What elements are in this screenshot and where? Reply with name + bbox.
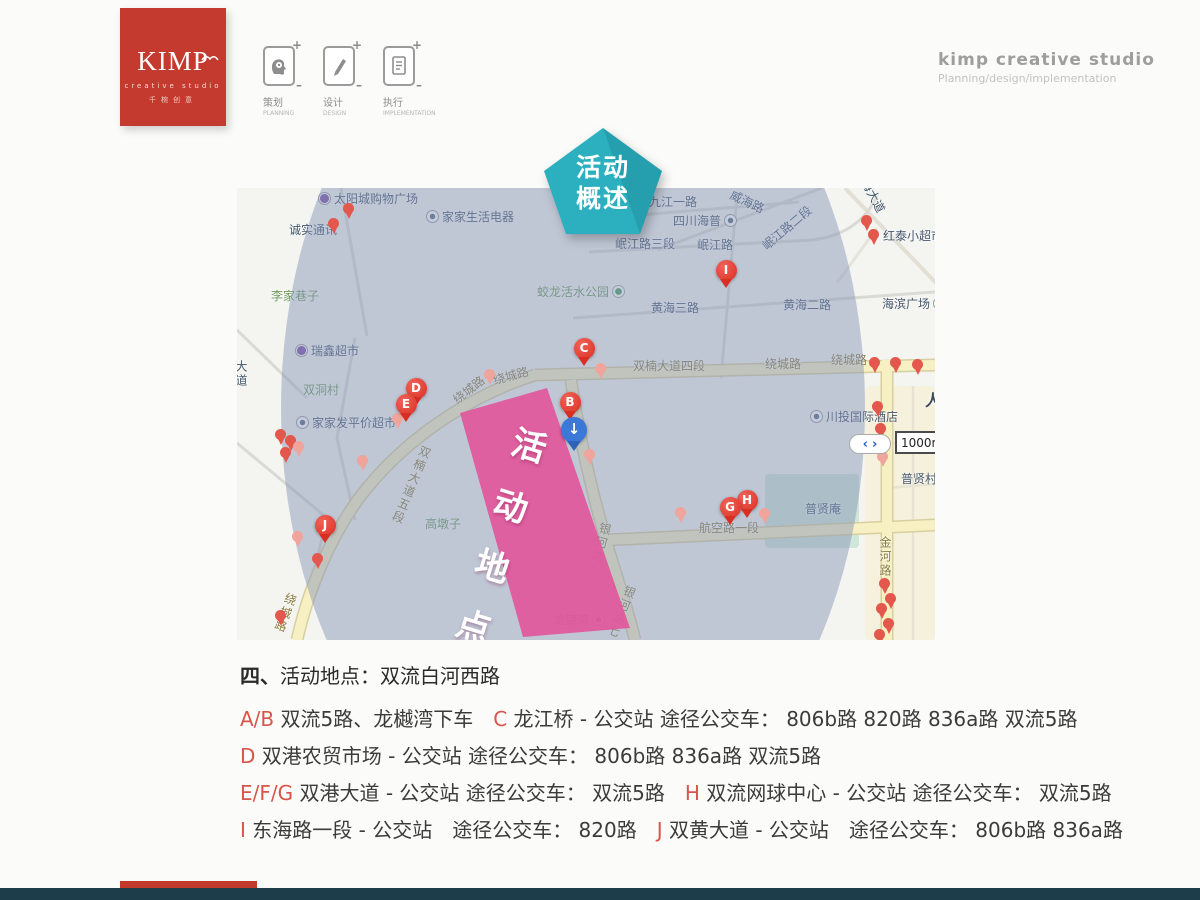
process-label-en: PLANNING [263, 110, 309, 117]
small-pin-icon [890, 357, 901, 368]
studio-title: kimp creative studio [938, 50, 1155, 70]
details-heading: 四、活动地点：双流白河西路 [240, 660, 1190, 689]
process-icons: + – 策划 PLANNING + – 设计 DESIGN + – 执行 IMP… [263, 46, 429, 117]
plus-icon: + [352, 38, 362, 52]
logo-subtitle: creative studio [120, 82, 226, 90]
map-pin-B: B [560, 392, 581, 413]
small-pin-icon [868, 229, 879, 240]
small-pin-icon [328, 218, 339, 229]
stop-letter: A/B [240, 707, 274, 731]
small-pin-icon [875, 423, 886, 434]
planning-head-icon: + – [263, 46, 295, 86]
heading-number: 四、 [240, 664, 280, 688]
section-badge: 活动 概述 [540, 122, 666, 242]
chevron-right-icon: › [872, 438, 877, 451]
route-line: D 双港农贸市场 - 公交站 途径公交车： 806b路 836a路 双流5路 [240, 738, 1190, 775]
minus-icon: – [296, 78, 302, 92]
map-pin-G: G [720, 497, 741, 518]
process-label-zh: 执行 [383, 94, 429, 109]
small-pin-icon [759, 508, 770, 519]
small-pin-icon [876, 603, 887, 614]
process-item-planning: + – 策划 PLANNING [263, 46, 309, 117]
stop-letter: D [240, 744, 255, 768]
process-item-design: + – 设计 DESIGN [323, 46, 369, 117]
logo-tagline: 千椀创意 [120, 95, 226, 105]
route-line: A/B 双流5路、龙樾湾下车 C 龙江桥 - 公交站 途径公交车： 806b路 … [240, 701, 1190, 738]
stop-description: 双港大道 - 公交站 途径公交车： 双流5路 [293, 781, 685, 805]
footer-bar [0, 888, 1200, 900]
route-lines: A/B 双流5路、龙樾湾下车 C 龙江桥 - 公交站 途径公交车： 806b路 … [240, 701, 1190, 849]
small-pin-icon [874, 629, 885, 640]
studio-subtitle: Planning/design/implementation [938, 72, 1155, 85]
plus-icon: + [292, 38, 302, 52]
studio-wordmark: kimp creative studio Planning/design/imp… [938, 50, 1155, 85]
minus-icon: – [356, 78, 362, 92]
small-pin-icon [292, 531, 303, 542]
process-label-en: DESIGN [323, 110, 369, 117]
slide: KIMP creative studio 千椀创意 + – 策划 PLANNIN… [0, 0, 1200, 900]
stop-description: 双黄大道 - 公交站 途径公交车： 806b路 836a路 [663, 818, 1123, 842]
map-zoom-toggle-button[interactable]: ‹ › [849, 434, 891, 454]
small-pin-icon [912, 359, 923, 370]
process-label-zh: 策划 [263, 94, 309, 109]
arrow-down-pin-icon: ↓ [561, 417, 587, 443]
small-pin-icon [872, 401, 883, 412]
stop-description: 东海路一段 - 公交站 途径公交车： 820路 [246, 818, 657, 842]
event-location-map: 太阳城购物广场家家生活电器诚实通讯威海路九江一路四川海普岷江路三段岷江路岷江路二… [237, 188, 935, 640]
heading-text: 活动地点：双流白河西路 [280, 664, 500, 688]
map-pin-I: I [716, 260, 737, 281]
chevron-left-icon: ‹ [863, 438, 868, 451]
stop-letter: E/F/G [240, 781, 293, 805]
route-line: E/F/G 双港大道 - 公交站 途径公交车： 双流5路 H 双流网球中心 - … [240, 775, 1190, 812]
bird-icon [201, 40, 219, 67]
plus-icon: + [412, 38, 422, 52]
map-pins-layer: CIBDEJHG↓ [237, 188, 935, 640]
stop-letter: C [493, 707, 507, 731]
route-line: I 东海路一段 - 公交站 途径公交车： 820路 J 双黄大道 - 公交站 途… [240, 812, 1190, 849]
small-pin-icon [885, 593, 896, 604]
stop-letter: H [685, 781, 700, 805]
map-pin-C: C [574, 338, 595, 359]
small-pin-icon [883, 618, 894, 629]
small-pin-icon [861, 215, 872, 226]
stop-description: 龙江桥 - 公交站 途径公交车： 806b路 820路 836a路 双流5路 [507, 707, 1077, 731]
map-scale-indicator: 1000m [895, 431, 935, 454]
small-pin-icon [293, 441, 304, 452]
pencil-icon: + – [323, 46, 355, 86]
small-pin-icon [869, 357, 880, 368]
location-details: 四、活动地点：双流白河西路 A/B 双流5路、龙樾湾下车 C 龙江桥 - 公交站… [240, 660, 1190, 849]
minus-icon: – [416, 78, 422, 92]
small-pin-icon [584, 449, 595, 460]
small-pin-icon [280, 447, 291, 458]
small-pin-icon [357, 455, 368, 466]
small-pin-icon [484, 369, 495, 380]
map-pin-J: J [315, 515, 336, 536]
document-icon: + – [383, 46, 415, 86]
small-pin-icon [312, 553, 323, 564]
section-badge-text: 活动 概述 [540, 152, 666, 215]
small-pin-icon [343, 203, 354, 214]
logo-title: KIMP [137, 48, 209, 75]
process-item-implementation: + – 执行 IMPLEMENTATION [383, 46, 429, 117]
stop-description: 双港农贸市场 - 公交站 途径公交车： 806b路 836a路 双流5路 [255, 744, 821, 768]
stop-description: 双流网球中心 - 公交站 途径公交车： 双流5路 [700, 781, 1112, 805]
small-pin-icon [595, 363, 606, 374]
process-label-zh: 设计 [323, 94, 369, 109]
kimp-logo: KIMP creative studio 千椀创意 [120, 8, 226, 126]
stop-description: 双流5路、龙樾湾下车 [274, 707, 493, 731]
small-pin-icon [879, 578, 890, 589]
small-pin-icon [675, 507, 686, 518]
process-label-en: IMPLEMENTATION [383, 110, 429, 117]
map-pin-E: E [396, 394, 417, 415]
small-pin-icon [275, 610, 286, 621]
